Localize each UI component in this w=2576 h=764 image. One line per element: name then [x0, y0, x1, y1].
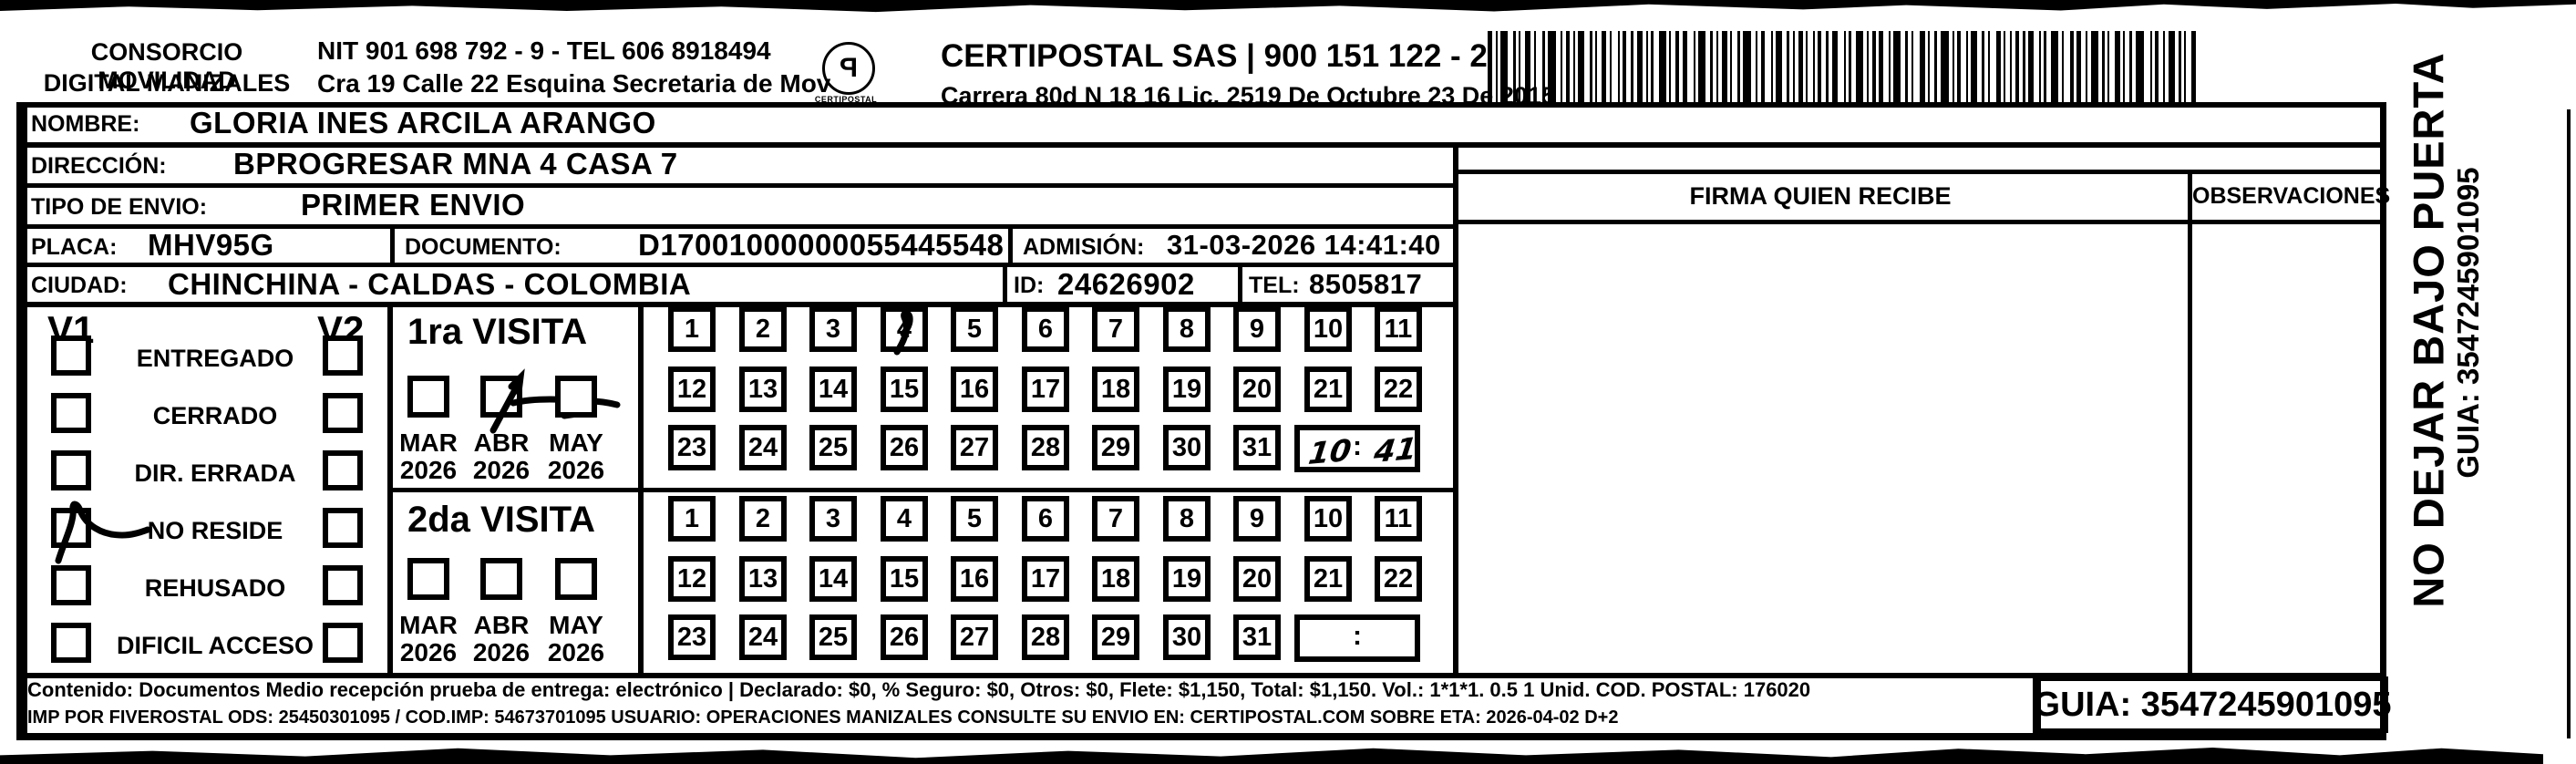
- day-number: 28: [1031, 433, 1060, 463]
- barcode-bar: [1595, 31, 1597, 102]
- day-number: 3: [826, 504, 840, 534]
- barcode-bar: [2091, 31, 2098, 102]
- day-number: 31: [1242, 623, 1272, 653]
- barcode-bar: [1826, 31, 1829, 102]
- divider: [390, 226, 395, 267]
- barcode-bar: [1646, 31, 1648, 102]
- time-separator: :: [1353, 621, 1362, 652]
- visit2-day-10[interactable]: 10: [1304, 496, 1352, 542]
- visit1-day-30[interactable]: 30: [1163, 425, 1211, 470]
- barcode-bar: [1872, 31, 1876, 102]
- barcode-bar: [1683, 31, 1687, 102]
- id-label: ID:: [1014, 273, 1044, 299]
- status-row: ENTREGADO: [16, 334, 387, 381]
- documento-value: D17001000000055445548: [638, 228, 1004, 263]
- visit-year-label: 2026: [460, 638, 542, 667]
- barcode-bar: [2169, 31, 2175, 102]
- divider: [1008, 226, 1013, 267]
- visit2-day-20[interactable]: 20: [1233, 556, 1281, 602]
- barcode-bar: [2044, 31, 2046, 102]
- day-number: 1: [685, 315, 699, 345]
- day-number: 17: [1031, 375, 1060, 405]
- visit2-day-23[interactable]: 23: [668, 614, 716, 660]
- company-name-line2: DIGITAL MANIZALES: [26, 69, 308, 98]
- visit1-day-14[interactable]: 14: [809, 367, 857, 412]
- visit1-day-10[interactable]: 10: [1304, 306, 1352, 352]
- placa-value: MHV95G: [148, 228, 274, 263]
- visit2-day-8[interactable]: 8: [1163, 496, 1211, 542]
- day-number: 27: [960, 623, 989, 653]
- barcode-bar: [2163, 31, 2165, 102]
- visit1-day-8[interactable]: 8: [1163, 306, 1211, 352]
- day-number: 19: [1172, 375, 1201, 405]
- nombre-label: NOMBRE:: [31, 111, 139, 138]
- day-number: 21: [1314, 564, 1343, 594]
- barcode-bar: [2076, 31, 2081, 102]
- visit1-day-18[interactable]: 18: [1092, 367, 1139, 412]
- visit-month-checkbox-mar[interactable]: [407, 558, 449, 600]
- day-number: 4: [897, 504, 912, 534]
- barcode-bar: [1966, 31, 1968, 102]
- day-number: 14: [819, 375, 848, 405]
- visit-month-checkbox-may[interactable]: [555, 558, 597, 600]
- day-number: 11: [1385, 504, 1413, 534]
- barcode-bar: [1832, 31, 1838, 102]
- day-number: 18: [1101, 564, 1130, 594]
- status-row: NO RESIDE: [16, 506, 387, 553]
- footer-content-line: Contenido: Documentos Medio recepción pr…: [27, 678, 1810, 702]
- certipostal-logo-icon: P: [822, 42, 875, 95]
- v1-checkbox-rehusado[interactable]: [51, 565, 91, 605]
- visit-month-checkbox-may[interactable]: [555, 376, 597, 418]
- status-panel: V1 V2 ENTREGADOCERRADODIR. ERRADANO RESI…: [16, 308, 387, 673]
- barcode-bar: [1982, 31, 1984, 102]
- barcode-bar: [1573, 31, 1575, 102]
- barcode-bar: [1889, 31, 1891, 102]
- visit1-day-27[interactable]: 27: [951, 425, 998, 470]
- scan-edge-line: [2567, 109, 2571, 738]
- status-row: DIR. ERRADA: [16, 449, 387, 496]
- v2-checkbox-cerrado[interactable]: [323, 393, 363, 433]
- barcode-bar: [2179, 31, 2181, 102]
- day-number: 4: [897, 315, 912, 345]
- barcode-bar: [1761, 31, 1765, 102]
- day-number: 27: [960, 433, 989, 463]
- day-number: 21: [1314, 375, 1343, 405]
- barcode-bar: [2086, 31, 2087, 102]
- visit1-day-24[interactable]: 24: [739, 425, 787, 470]
- barcode-bar: [1675, 31, 1679, 102]
- visit2-day-27[interactable]: 27: [951, 614, 998, 660]
- divider: [1003, 264, 1007, 306]
- day-number: 6: [1038, 504, 1053, 534]
- barcode-bar: [2028, 31, 2034, 102]
- visit-month-label: ABR: [460, 611, 542, 640]
- visit1-day-22[interactable]: 22: [1375, 367, 1422, 412]
- status-option-label: ENTREGADO: [137, 345, 294, 373]
- visit2-day-31[interactable]: 31: [1233, 614, 1281, 660]
- admision-label: ADMISIÓN:: [1023, 234, 1144, 261]
- visit2-day-11[interactable]: 11: [1375, 496, 1422, 542]
- v1-checkbox-no-reside[interactable]: [51, 508, 91, 548]
- barcode-bar: [1694, 31, 1695, 102]
- visit2-day-4[interactable]: 4: [881, 496, 928, 542]
- day-number: 10: [1314, 504, 1343, 534]
- barcode-bar: [1844, 31, 1846, 102]
- barcode-bar: [1971, 31, 1977, 102]
- day-number: 14: [819, 564, 848, 594]
- barcode-bar: [1578, 31, 1584, 102]
- tel-label: TEL:: [1249, 273, 1300, 299]
- second-visit-title: 2da VISITA: [407, 500, 595, 541]
- handwritten-time-hours: 10: [1306, 432, 1353, 471]
- company-nit: NIT 901 698 792 - 9 - TEL 606 8918494: [317, 36, 771, 66]
- day-number: 7: [1108, 504, 1123, 534]
- visit1-day-4[interactable]: 4: [881, 306, 928, 352]
- v1-checkbox-entregado[interactable]: [51, 336, 91, 376]
- ciudad-label: CIUDAD:: [31, 273, 128, 299]
- day-number: 28: [1031, 623, 1060, 653]
- handwritten-time-minutes: 41: [1372, 430, 1418, 470]
- v1-checkbox-cerrado[interactable]: [51, 393, 91, 433]
- visit2-time-box[interactable]: :: [1294, 614, 1420, 662]
- barcode-bar: [1722, 31, 1727, 102]
- day-number: 5: [967, 315, 982, 345]
- placa-label: PLACA:: [31, 234, 117, 261]
- visit1-day-12[interactable]: 12: [668, 367, 716, 412]
- barcode-bar: [1651, 31, 1654, 102]
- day-number: 29: [1101, 623, 1130, 653]
- observaciones-area[interactable]: [2192, 224, 2380, 673]
- v2-checkbox-rehusado[interactable]: [323, 565, 363, 605]
- visit-month-label: MAY: [535, 611, 617, 640]
- barcode-bar: [2004, 31, 2005, 102]
- shipment-barcode: [1488, 31, 2222, 102]
- visit2-day-6[interactable]: 6: [1022, 496, 1069, 542]
- day-number: 3: [826, 315, 840, 345]
- visit2-day-28[interactable]: 28: [1022, 614, 1069, 660]
- barcode-bar: [1631, 31, 1633, 102]
- visit-month-label: MAR: [387, 428, 469, 458]
- guia-box-value: GUIA: 3547245901095: [2041, 681, 2384, 728]
- side-guia-text: GUIA: 3547245901095: [2451, 167, 2486, 478]
- day-number: 13: [748, 375, 778, 405]
- barcode-bar: [1513, 31, 1516, 102]
- visit-month-label: MAY: [535, 428, 617, 458]
- barcode-bar: [2155, 31, 2159, 102]
- barcode-bar: [1623, 31, 1626, 102]
- day-number: 15: [890, 564, 919, 594]
- divider: [16, 183, 1458, 188]
- day-number: 20: [1242, 375, 1272, 405]
- day-number: 24: [748, 623, 778, 653]
- admision-value: 31-03-2026 14:41:40: [1167, 229, 1441, 262]
- handwritten-day-mark: [882, 308, 930, 356]
- barcode-bar: [1519, 31, 1520, 102]
- day-number: 13: [748, 564, 778, 594]
- id-value: 24626902: [1057, 267, 1195, 302]
- visit1-day-29[interactable]: 29: [1092, 425, 1139, 470]
- barcode-bar: [1849, 31, 1851, 102]
- day-number: 2: [756, 315, 770, 345]
- visit2-day-29[interactable]: 29: [1092, 614, 1139, 660]
- day-number: 1: [685, 504, 699, 534]
- visit2-day-17[interactable]: 17: [1022, 556, 1069, 602]
- divider: [1238, 264, 1242, 306]
- visit1-day-5[interactable]: 5: [951, 306, 998, 352]
- visit1-time-box[interactable]: :1041: [1294, 425, 1420, 472]
- day-number: 11: [1385, 315, 1413, 345]
- barcode-bar: [1710, 31, 1713, 102]
- visit-month-label: MAR: [387, 611, 469, 640]
- v2-checkbox-dificil-acceso[interactable]: [323, 623, 363, 663]
- visit1-day-11[interactable]: 11: [1375, 306, 1422, 352]
- barcode-bar: [1818, 31, 1821, 102]
- barcode-bar: [1957, 31, 1961, 102]
- visit1-day-25[interactable]: 25: [809, 425, 857, 470]
- side-warning-text: NO DEJAR BAJO PUERTA: [2404, 52, 2454, 607]
- barcode-bar: [1793, 31, 1795, 102]
- barcode-bar: [1488, 31, 1492, 102]
- day-number: 9: [1250, 315, 1264, 345]
- barcode-bar: [1561, 31, 1562, 102]
- status-row: CERRADO: [16, 391, 387, 439]
- documento-label: DOCUMENTO:: [405, 234, 562, 261]
- scan-tear-bottom: [0, 742, 2543, 764]
- visit2-day-1[interactable]: 1: [668, 496, 716, 542]
- ciudad-value: CHINCHINA - CALDAS - COLOMBIA: [168, 267, 691, 302]
- barcode-bar: [2150, 31, 2152, 102]
- visit2-day-7[interactable]: 7: [1092, 496, 1139, 542]
- barcode-bar: [1618, 31, 1620, 102]
- divider: [1453, 170, 2386, 174]
- barcode-bar: [1542, 31, 1545, 102]
- visit1-day-31[interactable]: 31: [1233, 425, 1281, 470]
- barcode-bar: [1806, 31, 1808, 102]
- visit1-day-2[interactable]: 2: [739, 306, 787, 352]
- day-number: 30: [1172, 433, 1201, 463]
- visit1-day-17[interactable]: 17: [1022, 367, 1069, 412]
- day-number: 16: [960, 375, 989, 405]
- day-number: 17: [1031, 564, 1060, 594]
- barcode-bar: [2107, 31, 2109, 102]
- day-number: 5: [967, 504, 982, 534]
- barcode-bar: [1496, 31, 1498, 102]
- barcode-bar: [2062, 31, 2064, 102]
- visit1-day-7[interactable]: 7: [1092, 306, 1139, 352]
- barcode-bar: [1928, 31, 1930, 102]
- second-visit-months: MAR2026ABR2026MAY2026: [387, 558, 638, 673]
- barcode-bar: [1920, 31, 1925, 102]
- day-number: 29: [1101, 433, 1130, 463]
- scanned-delivery-form: CONSORCIO MOVILIDAD DIGITAL MANIZALES NI…: [0, 0, 2576, 764]
- day-number: 20: [1242, 564, 1272, 594]
- visit2-day-12[interactable]: 12: [668, 556, 716, 602]
- visit-month-label: ABR: [460, 428, 542, 458]
- visit2-day-19[interactable]: 19: [1163, 556, 1211, 602]
- barcode-bar: [1610, 31, 1612, 102]
- visit1-day-6[interactable]: 6: [1022, 306, 1069, 352]
- visit2-day-3[interactable]: 3: [809, 496, 857, 542]
- tipo-envio-label: TIPO DE ENVIO:: [31, 194, 207, 221]
- visit1-day-21[interactable]: 21: [1304, 367, 1352, 412]
- visit-month-checkbox-abr[interactable]: [480, 376, 522, 418]
- v1-checkbox-dificil-acceso[interactable]: [51, 623, 91, 663]
- visit2-day-30[interactable]: 30: [1163, 614, 1211, 660]
- visit1-day-16[interactable]: 16: [951, 367, 998, 412]
- day-number: 10: [1314, 315, 1343, 345]
- v2-checkbox-no-reside[interactable]: [323, 508, 363, 548]
- barcode-bar: [1776, 31, 1782, 102]
- barcode-bar: [1525, 31, 1530, 102]
- day-number: 26: [890, 623, 919, 653]
- signature-area[interactable]: [1458, 224, 2188, 673]
- barcode-bar: [2123, 31, 2125, 102]
- barcode-bar: [1813, 31, 1815, 102]
- status-option-label: NO RESIDE: [148, 517, 283, 545]
- first-visit-title: 1ra VISITA: [407, 312, 587, 353]
- visit1-day-13[interactable]: 13: [739, 367, 787, 412]
- first-visit-months: MAR2026ABR2026MAY2026: [387, 376, 638, 490]
- observaciones-header: OBSERVACIONES: [2192, 183, 2386, 210]
- day-number: 19: [1172, 564, 1201, 594]
- barcode-bar: [2070, 31, 2074, 102]
- visit1-day-1[interactable]: 1: [668, 306, 716, 352]
- barcode-bar: [1941, 31, 1949, 102]
- day-number: 23: [677, 623, 706, 653]
- visit1-day-20[interactable]: 20: [1233, 367, 1281, 412]
- visit2-day-9[interactable]: 9: [1233, 496, 1281, 542]
- status-option-label: DIFICIL ACCESO: [117, 632, 314, 660]
- v2-checkbox-entregado[interactable]: [323, 336, 363, 376]
- day-number: 12: [677, 375, 706, 405]
- day-number: 23: [677, 433, 706, 463]
- tipo-envio-value: PRIMER ENVIO: [301, 188, 525, 222]
- barcode-bar: [1602, 31, 1606, 102]
- barcode-bar: [1669, 31, 1671, 102]
- barcode-bar: [1771, 31, 1773, 102]
- operator-name: CERTIPOSTAL SAS | 900 151 122 - 2: [941, 38, 1488, 75]
- day-number: 8: [1180, 504, 1194, 534]
- direccion-label: DIRECCIÓN:: [31, 153, 167, 180]
- day-number: 7: [1108, 315, 1123, 345]
- visit2-day-14[interactable]: 14: [809, 556, 857, 602]
- barcode-bar: [1698, 31, 1705, 102]
- nombre-value: GLORIA INES ARCILA ARANGO: [190, 106, 656, 140]
- barcode-bar: [1566, 31, 1570, 102]
- visit1-day-26[interactable]: 26: [881, 425, 928, 470]
- visit-year-label: 2026: [387, 456, 469, 485]
- barcode-bar: [2102, 31, 2105, 102]
- barcode-bar: [1716, 31, 1718, 102]
- visit1-day-3[interactable]: 3: [809, 306, 857, 352]
- day-number: 18: [1101, 375, 1130, 405]
- visit1-day-9[interactable]: 9: [1233, 306, 1281, 352]
- guia-box: GUIA: 3547245901095: [2036, 676, 2388, 733]
- visit2-day-25[interactable]: 25: [809, 614, 857, 660]
- barcode-bar: [1905, 31, 1908, 102]
- visit-year-label: 2026: [535, 638, 617, 667]
- visit2-day-22[interactable]: 22: [1375, 556, 1422, 602]
- barcode-bar: [1743, 31, 1751, 102]
- visit2-day-2[interactable]: 2: [739, 496, 787, 542]
- barcode-bar: [1893, 31, 1901, 102]
- day-number: 26: [890, 433, 919, 463]
- barcode-bar: [2010, 31, 2012, 102]
- v2-checkbox-dir-errada[interactable]: [323, 450, 363, 490]
- barcode-bar: [1787, 31, 1789, 102]
- visit2-day-16[interactable]: 16: [951, 556, 998, 602]
- barcode-bar: [2015, 31, 2019, 102]
- status-option-label: DIR. ERRADA: [134, 459, 295, 488]
- divider: [638, 305, 644, 673]
- status-row: REHUSADO: [16, 563, 387, 611]
- day-number: 8: [1180, 315, 1194, 345]
- direccion-value: BPROGRESAR MNA 4 CASA 7: [233, 147, 678, 181]
- day-number: 15: [890, 375, 919, 405]
- visit2-day-24[interactable]: 24: [739, 614, 787, 660]
- day-number: 25: [819, 623, 848, 653]
- day-number: 22: [1384, 564, 1413, 594]
- visit1-day-15[interactable]: 15: [881, 367, 928, 412]
- visit2-day-13[interactable]: 13: [739, 556, 787, 602]
- visit-month-checkbox-abr[interactable]: [480, 558, 522, 600]
- barcode-bar: [1590, 31, 1592, 102]
- day-number: 30: [1172, 623, 1201, 653]
- day-number: 24: [748, 433, 778, 463]
- v1-checkbox-dir-errada[interactable]: [51, 450, 91, 490]
- barcode-bar: [1737, 31, 1740, 102]
- visit2-day-21[interactable]: 21: [1304, 556, 1352, 602]
- firma-header: FIRMA QUIEN RECIBE: [1453, 182, 2188, 211]
- day-number: 6: [1038, 315, 1053, 345]
- visit1-day-19[interactable]: 19: [1163, 367, 1211, 412]
- day-number: 31: [1242, 433, 1272, 463]
- barcode-bar: [1756, 31, 1757, 102]
- visit2-day-18[interactable]: 18: [1092, 556, 1139, 602]
- barcode-bar: [2129, 31, 2132, 102]
- day-number: 9: [1250, 504, 1264, 534]
- company-address: Cra 19 Calle 22 Esquina Secretaria de Mo…: [317, 69, 830, 98]
- time-separator: :: [1353, 431, 1362, 462]
- footer-imp-line: IMP POR FIVEROSTAL ODS: 25450301095 / CO…: [27, 707, 1618, 728]
- barcode-bar: [2023, 31, 2025, 102]
- barcode-bar: [1879, 31, 1883, 102]
- barcode-bar: [2039, 31, 2041, 102]
- visit2-day-15[interactable]: 15: [881, 556, 928, 602]
- barcode-bar: [1953, 31, 1954, 102]
- visit-year-label: 2026: [387, 638, 469, 667]
- barcode-bar: [1659, 31, 1666, 102]
- day-number: 12: [677, 564, 706, 594]
- barcode-bar: [2191, 31, 2196, 102]
- barcode-bar: [1637, 31, 1643, 102]
- visit1-day-23[interactable]: 23: [668, 425, 716, 470]
- status-option-label: CERRADO: [153, 402, 278, 430]
- tel-value: 8505817: [1309, 268, 1422, 301]
- visit2-day-5[interactable]: 5: [951, 496, 998, 542]
- status-row: DIFICIL ACCESO: [16, 621, 387, 668]
- status-option-label: REHUSADO: [145, 574, 286, 603]
- barcode-bar: [2115, 31, 2120, 102]
- barcode-bar: [2136, 31, 2144, 102]
- visit1-day-28[interactable]: 28: [1022, 425, 1069, 470]
- day-number: 22: [1384, 375, 1413, 405]
- day-number: 2: [756, 504, 770, 534]
- visit-month-checkbox-mar[interactable]: [407, 376, 449, 418]
- visit2-day-26[interactable]: 26: [881, 614, 928, 660]
- barcode-bar: [1934, 31, 1937, 102]
